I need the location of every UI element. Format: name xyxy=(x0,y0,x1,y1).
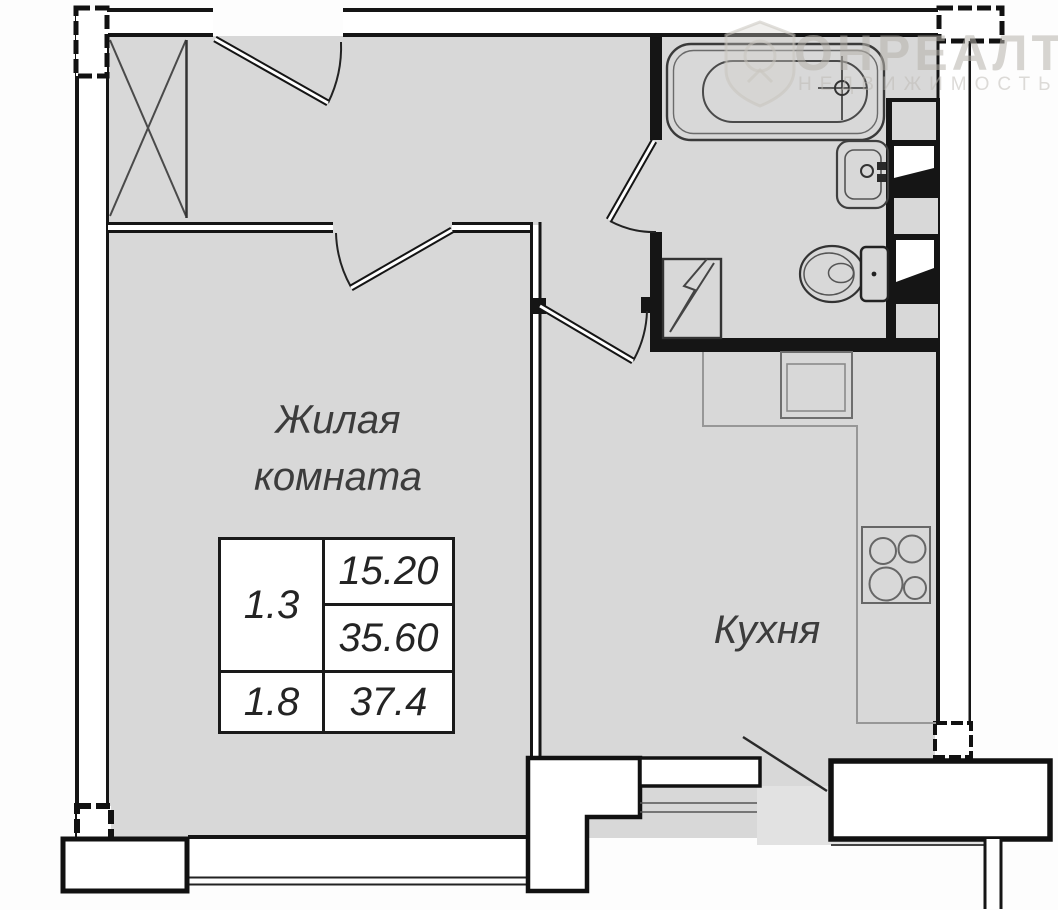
floor-plan-drawing xyxy=(0,0,1058,910)
water-heater xyxy=(663,259,721,338)
stamp-room-number: 1.3 xyxy=(221,540,325,670)
bottom-left-wall xyxy=(63,839,187,891)
pier-right-small xyxy=(935,723,971,757)
floor-plan: Жилая комната Кухня 1.3 15.20 35.60 1.8 … xyxy=(0,0,1058,910)
door-stop xyxy=(641,297,654,313)
pier-top-right xyxy=(939,8,1002,41)
stamp-living-area: 15.20 xyxy=(325,540,452,606)
stamp-second-number: 1.8 xyxy=(221,670,325,731)
living-room-label: Жилая комната xyxy=(226,392,450,506)
kitchen-window-frame xyxy=(640,758,760,786)
stamp-total-area: 35.60 xyxy=(325,606,452,670)
vent-shafts xyxy=(886,98,940,348)
area-stamp-table: 1.3 15.20 35.60 1.8 37.4 xyxy=(218,537,455,734)
living-room-window xyxy=(188,835,530,885)
living-room-label-line2: комната xyxy=(226,449,450,506)
pier-top-left xyxy=(76,8,107,76)
kitchen-label: Кухня xyxy=(682,606,852,654)
bottom-right-wall-leg xyxy=(984,839,1003,909)
living-room-label-line1: Жилая xyxy=(226,392,450,449)
bottom-right-wall xyxy=(831,761,1050,839)
stamp-second-area: 37.4 xyxy=(325,670,452,731)
